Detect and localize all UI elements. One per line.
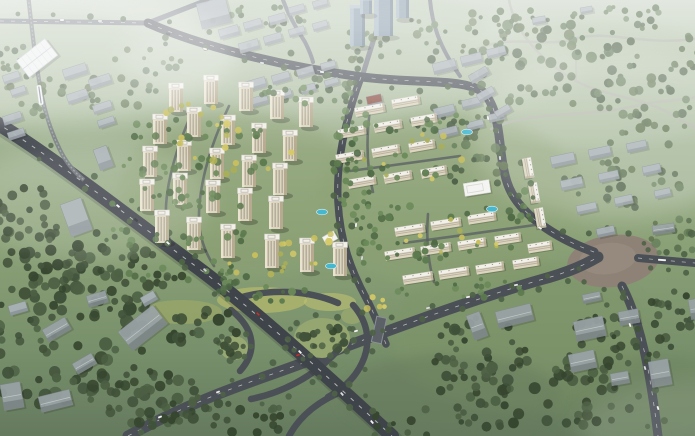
tree (601, 368, 608, 375)
tree (146, 273, 151, 278)
tree (422, 169, 429, 176)
atmospheric-haze (120, 5, 580, 115)
tree (268, 298, 274, 304)
tree (361, 260, 367, 266)
tree (378, 211, 383, 216)
tree (243, 273, 250, 280)
tree (228, 261, 232, 265)
tree (80, 261, 88, 269)
tree (366, 189, 371, 194)
tree (465, 419, 472, 426)
window-stripe (342, 249, 343, 274)
tower-lit-edge (273, 168, 276, 195)
window-stripe (245, 162, 246, 185)
tree (213, 337, 220, 344)
roof-unit (400, 173, 401, 174)
tree (88, 284, 97, 293)
tree (679, 309, 686, 316)
tree (444, 322, 450, 328)
street-tree (645, 247, 650, 252)
tree (354, 150, 361, 157)
tree (599, 374, 609, 384)
tree (309, 261, 313, 265)
street-tree (334, 314, 341, 321)
tree (224, 233, 232, 241)
tree (487, 362, 497, 372)
tree (101, 354, 113, 366)
tree (212, 413, 220, 421)
tower-roof (269, 196, 284, 202)
roof-unit (503, 236, 504, 237)
tree (159, 281, 168, 290)
tree (164, 272, 172, 280)
swimming-pool (326, 263, 337, 269)
tree (279, 241, 284, 246)
street-tree (560, 228, 567, 235)
window-stripe (274, 241, 275, 266)
tree (235, 405, 245, 415)
tree (107, 387, 116, 396)
street-tree (310, 379, 316, 385)
tree (252, 252, 258, 258)
tree (482, 347, 492, 357)
street-tree (604, 302, 609, 307)
roof-unit (441, 271, 442, 272)
tree (326, 324, 333, 331)
window-stripe (247, 195, 248, 219)
tower-lit-edge (221, 229, 224, 258)
tree (279, 298, 285, 304)
tree (453, 346, 459, 352)
roof-unit (420, 274, 421, 275)
tree (453, 403, 461, 411)
tree (114, 268, 123, 277)
tree (59, 276, 68, 285)
street-tree (365, 277, 371, 283)
tree (407, 416, 416, 425)
tree (48, 314, 55, 321)
tree (171, 275, 177, 281)
tree (471, 375, 477, 381)
tree (118, 310, 127, 319)
tree (173, 375, 184, 386)
tree (159, 265, 166, 272)
tree (315, 329, 321, 335)
tree (283, 261, 288, 266)
tree (441, 355, 451, 365)
street-tree (243, 331, 249, 337)
street-tree (370, 329, 376, 335)
tree (170, 400, 177, 407)
tree (635, 326, 641, 332)
street-tree (285, 336, 291, 342)
tree (597, 385, 607, 395)
swimming-pool (317, 209, 328, 215)
tree (35, 376, 42, 383)
tree (395, 253, 399, 257)
tree (268, 407, 275, 414)
street-tree (313, 312, 319, 318)
street-tree (369, 348, 375, 354)
tree (506, 207, 514, 215)
tree (452, 165, 459, 172)
tree (29, 316, 39, 326)
roof-unit (491, 213, 492, 214)
tree (380, 298, 385, 303)
road (638, 258, 695, 263)
tree (653, 221, 658, 226)
street-tree (220, 392, 225, 397)
window-stripe (339, 249, 340, 274)
tree (367, 170, 374, 177)
tree (675, 216, 683, 224)
tree (451, 326, 460, 335)
tree (683, 292, 690, 299)
street-tree (625, 230, 631, 236)
tree (359, 248, 364, 253)
tree (343, 178, 350, 185)
tower-roof (238, 188, 253, 194)
tree (76, 313, 84, 321)
street-tree (307, 353, 313, 359)
tree (8, 286, 15, 293)
tree (127, 396, 138, 407)
tree (382, 304, 387, 309)
tree (331, 168, 337, 174)
tower-lit-edge (333, 247, 336, 276)
tree (198, 155, 205, 162)
tree (52, 373, 61, 382)
roof-unit (497, 237, 498, 238)
tree (471, 414, 478, 421)
tree (193, 327, 204, 338)
tree (648, 298, 656, 306)
street-tree (625, 360, 632, 367)
tree (179, 259, 185, 265)
tree (276, 412, 284, 420)
tree (405, 293, 409, 297)
tree (52, 259, 63, 270)
window-stripe (278, 203, 279, 227)
street-tree (380, 328, 385, 333)
roof-unit (397, 228, 398, 229)
tree (172, 314, 180, 322)
street-tree (230, 378, 235, 383)
tree (443, 252, 449, 258)
roof-unit (481, 239, 482, 240)
tree (73, 341, 82, 350)
tower-roof (221, 224, 236, 230)
tree (341, 201, 347, 207)
street-tree (344, 348, 350, 354)
window-stripe (275, 203, 276, 227)
tree (450, 355, 456, 361)
tree (130, 364, 137, 371)
tree (115, 381, 122, 388)
tree (455, 413, 461, 419)
tree (385, 255, 390, 260)
roof-unit (412, 275, 413, 276)
tree (496, 422, 504, 430)
tree (379, 165, 385, 171)
tree (361, 190, 367, 196)
tree (89, 311, 100, 322)
tree (224, 336, 232, 344)
tree (549, 377, 559, 387)
tree (288, 149, 294, 155)
tree (509, 339, 515, 345)
tree (330, 337, 336, 343)
tree (213, 314, 225, 326)
tree (281, 290, 285, 294)
tree (210, 422, 217, 429)
tree (459, 235, 465, 241)
tree (393, 152, 398, 157)
tree (130, 378, 139, 387)
tree (99, 337, 112, 350)
tree (391, 421, 396, 426)
tree (377, 304, 383, 310)
tree (472, 383, 481, 392)
window-stripe (279, 170, 280, 193)
window-stripe (268, 241, 269, 266)
tree (386, 164, 391, 169)
tree (437, 255, 443, 261)
tree (288, 288, 296, 296)
tree (147, 368, 154, 375)
tree (438, 243, 444, 249)
roof-unit (420, 225, 421, 226)
tree (376, 244, 382, 250)
tree (234, 270, 240, 276)
tree (476, 240, 481, 245)
roof-unit (393, 174, 394, 175)
tree (385, 214, 393, 222)
street-tree (389, 314, 395, 320)
tree (182, 410, 191, 419)
roof-unit (429, 169, 430, 170)
tree (156, 400, 163, 407)
street-tree (301, 357, 306, 362)
tree (603, 356, 614, 367)
aerial-rendering-canvas (0, 0, 695, 436)
tree (460, 362, 468, 370)
roof-unit (352, 153, 353, 154)
tree (126, 270, 133, 277)
tree (211, 258, 217, 264)
tree (155, 381, 166, 392)
roof-unit (543, 219, 544, 220)
tree (232, 328, 241, 337)
tree (503, 280, 507, 284)
roof-unit (440, 221, 441, 222)
roof-unit (492, 264, 493, 265)
tree (436, 386, 445, 395)
tree (528, 216, 534, 222)
roof-unit (515, 261, 516, 262)
tree (33, 302, 47, 316)
street-tree (288, 326, 293, 331)
tree (49, 301, 58, 310)
tree (611, 334, 616, 339)
roof-unit (405, 276, 406, 277)
tree (371, 232, 378, 239)
tree (201, 404, 210, 413)
roof-unit (478, 266, 479, 267)
street-tree (545, 273, 550, 278)
street-tree (327, 352, 333, 358)
window-stripe (309, 245, 310, 270)
street-tree (581, 279, 586, 284)
roof-unit (534, 258, 535, 259)
roof-unit (477, 215, 478, 216)
tree (30, 289, 37, 296)
roof-unit (428, 273, 429, 274)
tree (153, 271, 161, 279)
roof-unit (410, 249, 411, 250)
tower-side-shade (344, 247, 347, 276)
tree (225, 283, 232, 290)
tree (299, 332, 309, 342)
roof-unit (460, 242, 461, 243)
street-tree (346, 381, 353, 388)
street-tree (499, 296, 505, 302)
tree (3, 258, 13, 268)
roof-unit (484, 214, 485, 215)
tree (671, 288, 677, 294)
window-stripe (272, 203, 273, 227)
tree (654, 311, 662, 319)
roof-unit (404, 227, 405, 228)
roof-unit (364, 178, 365, 179)
tree (93, 266, 103, 276)
tower-roof (242, 155, 257, 161)
tree (484, 281, 491, 288)
tree (394, 175, 400, 181)
tree (506, 385, 513, 392)
street-tree (291, 348, 296, 353)
tree (543, 399, 553, 409)
tree (479, 284, 485, 290)
tree (41, 268, 48, 275)
tree (658, 300, 666, 308)
tower-roof (265, 234, 280, 240)
tree (508, 244, 514, 250)
tree (610, 313, 619, 322)
tree (289, 409, 296, 416)
roof-unit (544, 223, 545, 224)
tower-roof (333, 242, 348, 248)
street-tree (601, 287, 606, 292)
tree (374, 423, 382, 431)
tree (353, 204, 360, 211)
tree (542, 415, 553, 426)
tree (350, 157, 355, 162)
tree (225, 401, 231, 407)
tree (404, 239, 408, 243)
roof-unit (464, 268, 465, 269)
tree (97, 368, 107, 378)
roof-unit (387, 252, 388, 253)
tree (360, 215, 365, 220)
tree (447, 384, 454, 391)
tree (168, 417, 175, 424)
tower-side-shade (311, 243, 314, 272)
street-tree (282, 344, 288, 350)
tree (69, 377, 77, 385)
tree (616, 353, 623, 360)
window-stripe (271, 241, 272, 266)
roof-unit (407, 172, 408, 173)
tree (34, 325, 41, 332)
tree (372, 413, 379, 420)
tree (431, 358, 438, 365)
tree (448, 340, 454, 346)
tree (458, 167, 464, 173)
window-stripe (336, 249, 337, 274)
roof-unit (485, 265, 486, 266)
tree (140, 276, 147, 283)
roof-unit (470, 216, 471, 217)
street-tree (182, 264, 189, 271)
roof-unit (542, 214, 543, 215)
tree (188, 378, 195, 385)
street-tree (260, 401, 265, 406)
window-stripe (244, 195, 245, 219)
tree (461, 374, 468, 381)
tree (2, 367, 14, 379)
vehicle (355, 223, 357, 227)
tree (223, 171, 230, 178)
tree (562, 420, 568, 426)
tree (646, 352, 651, 357)
tree (370, 294, 376, 300)
tree (404, 429, 411, 436)
roof-unit (412, 226, 413, 227)
tree (461, 337, 467, 343)
tree (438, 332, 445, 339)
tree (194, 237, 199, 242)
street-tree (331, 192, 337, 198)
tower-lit-edge (242, 160, 245, 187)
tree (196, 163, 203, 170)
tree (666, 304, 672, 310)
tree (301, 287, 308, 294)
tree (354, 160, 358, 164)
street-tree (565, 278, 571, 284)
tree (514, 357, 524, 367)
tree (552, 366, 560, 374)
roof-unit (338, 155, 339, 156)
street-tree (218, 349, 224, 355)
tree (233, 229, 239, 235)
tree (452, 178, 458, 184)
tree (352, 166, 359, 173)
street-tree (362, 367, 367, 372)
street-tree (535, 286, 542, 293)
tree (227, 268, 233, 274)
tree (676, 322, 685, 331)
roof-unit (535, 244, 536, 245)
tree (175, 417, 183, 425)
tree (529, 382, 541, 394)
tree (633, 343, 640, 350)
tree (518, 289, 525, 296)
tree (479, 277, 483, 281)
roof-unit (345, 154, 346, 155)
tree (677, 234, 684, 241)
roof-unit (474, 240, 475, 241)
